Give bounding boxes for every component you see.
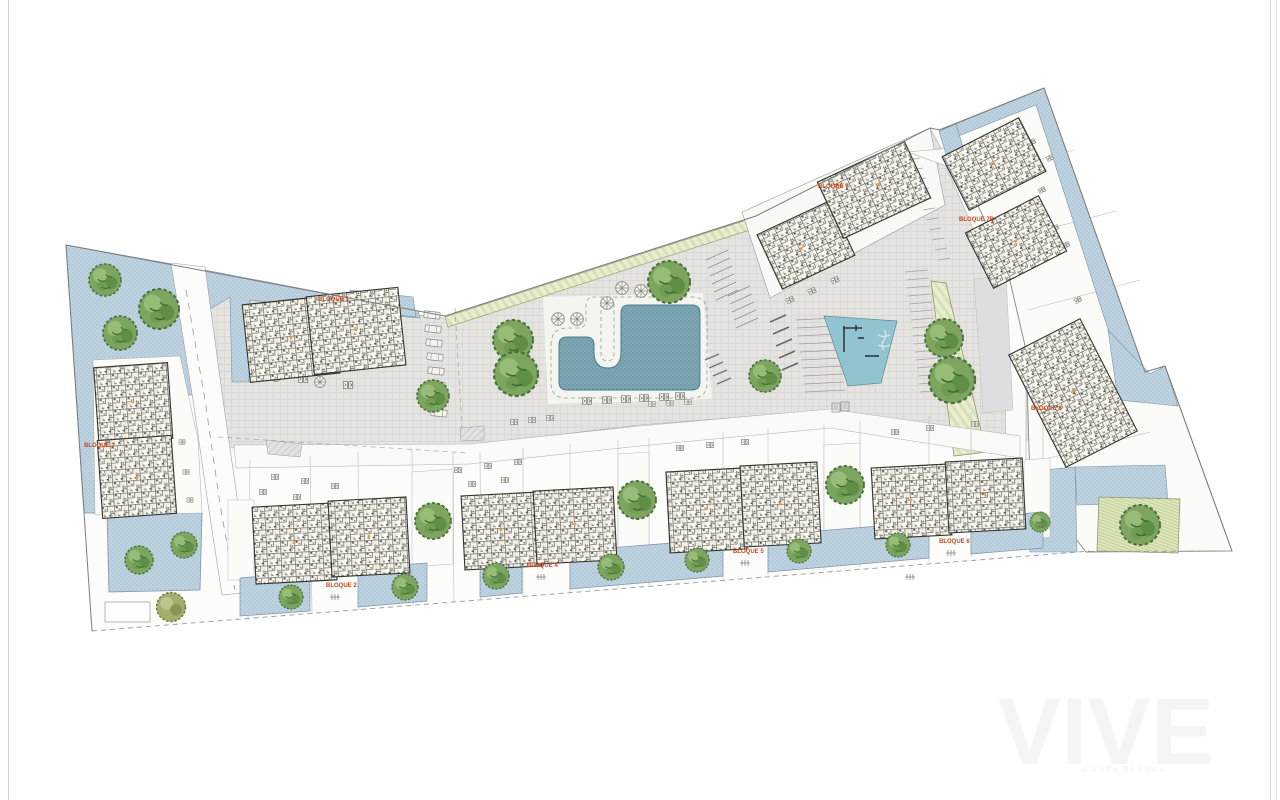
svg-text:COSTA BLANCA: COSTA BLANCA [1083,765,1168,774]
svg-text:BLOQUE 7B: BLOQUE 7B [959,217,995,223]
svg-text:BLOQUE 7: BLOQUE 7 [818,184,849,190]
svg-text:BLOQUE 6: BLOQUE 6 [939,539,970,545]
svg-text:BLOQUE 3: BLOQUE 3 [318,297,349,303]
svg-text:BLOQUE 2: BLOQUE 2 [326,583,357,589]
svg-text:BLOQUE 5: BLOQUE 5 [733,549,764,555]
svg-text:BLOQUE 1: BLOQUE 1 [84,443,115,449]
svg-text:BLOQUE 8: BLOQUE 8 [1031,406,1062,412]
svg-text:BLOQUE 4: BLOQUE 4 [527,563,558,569]
